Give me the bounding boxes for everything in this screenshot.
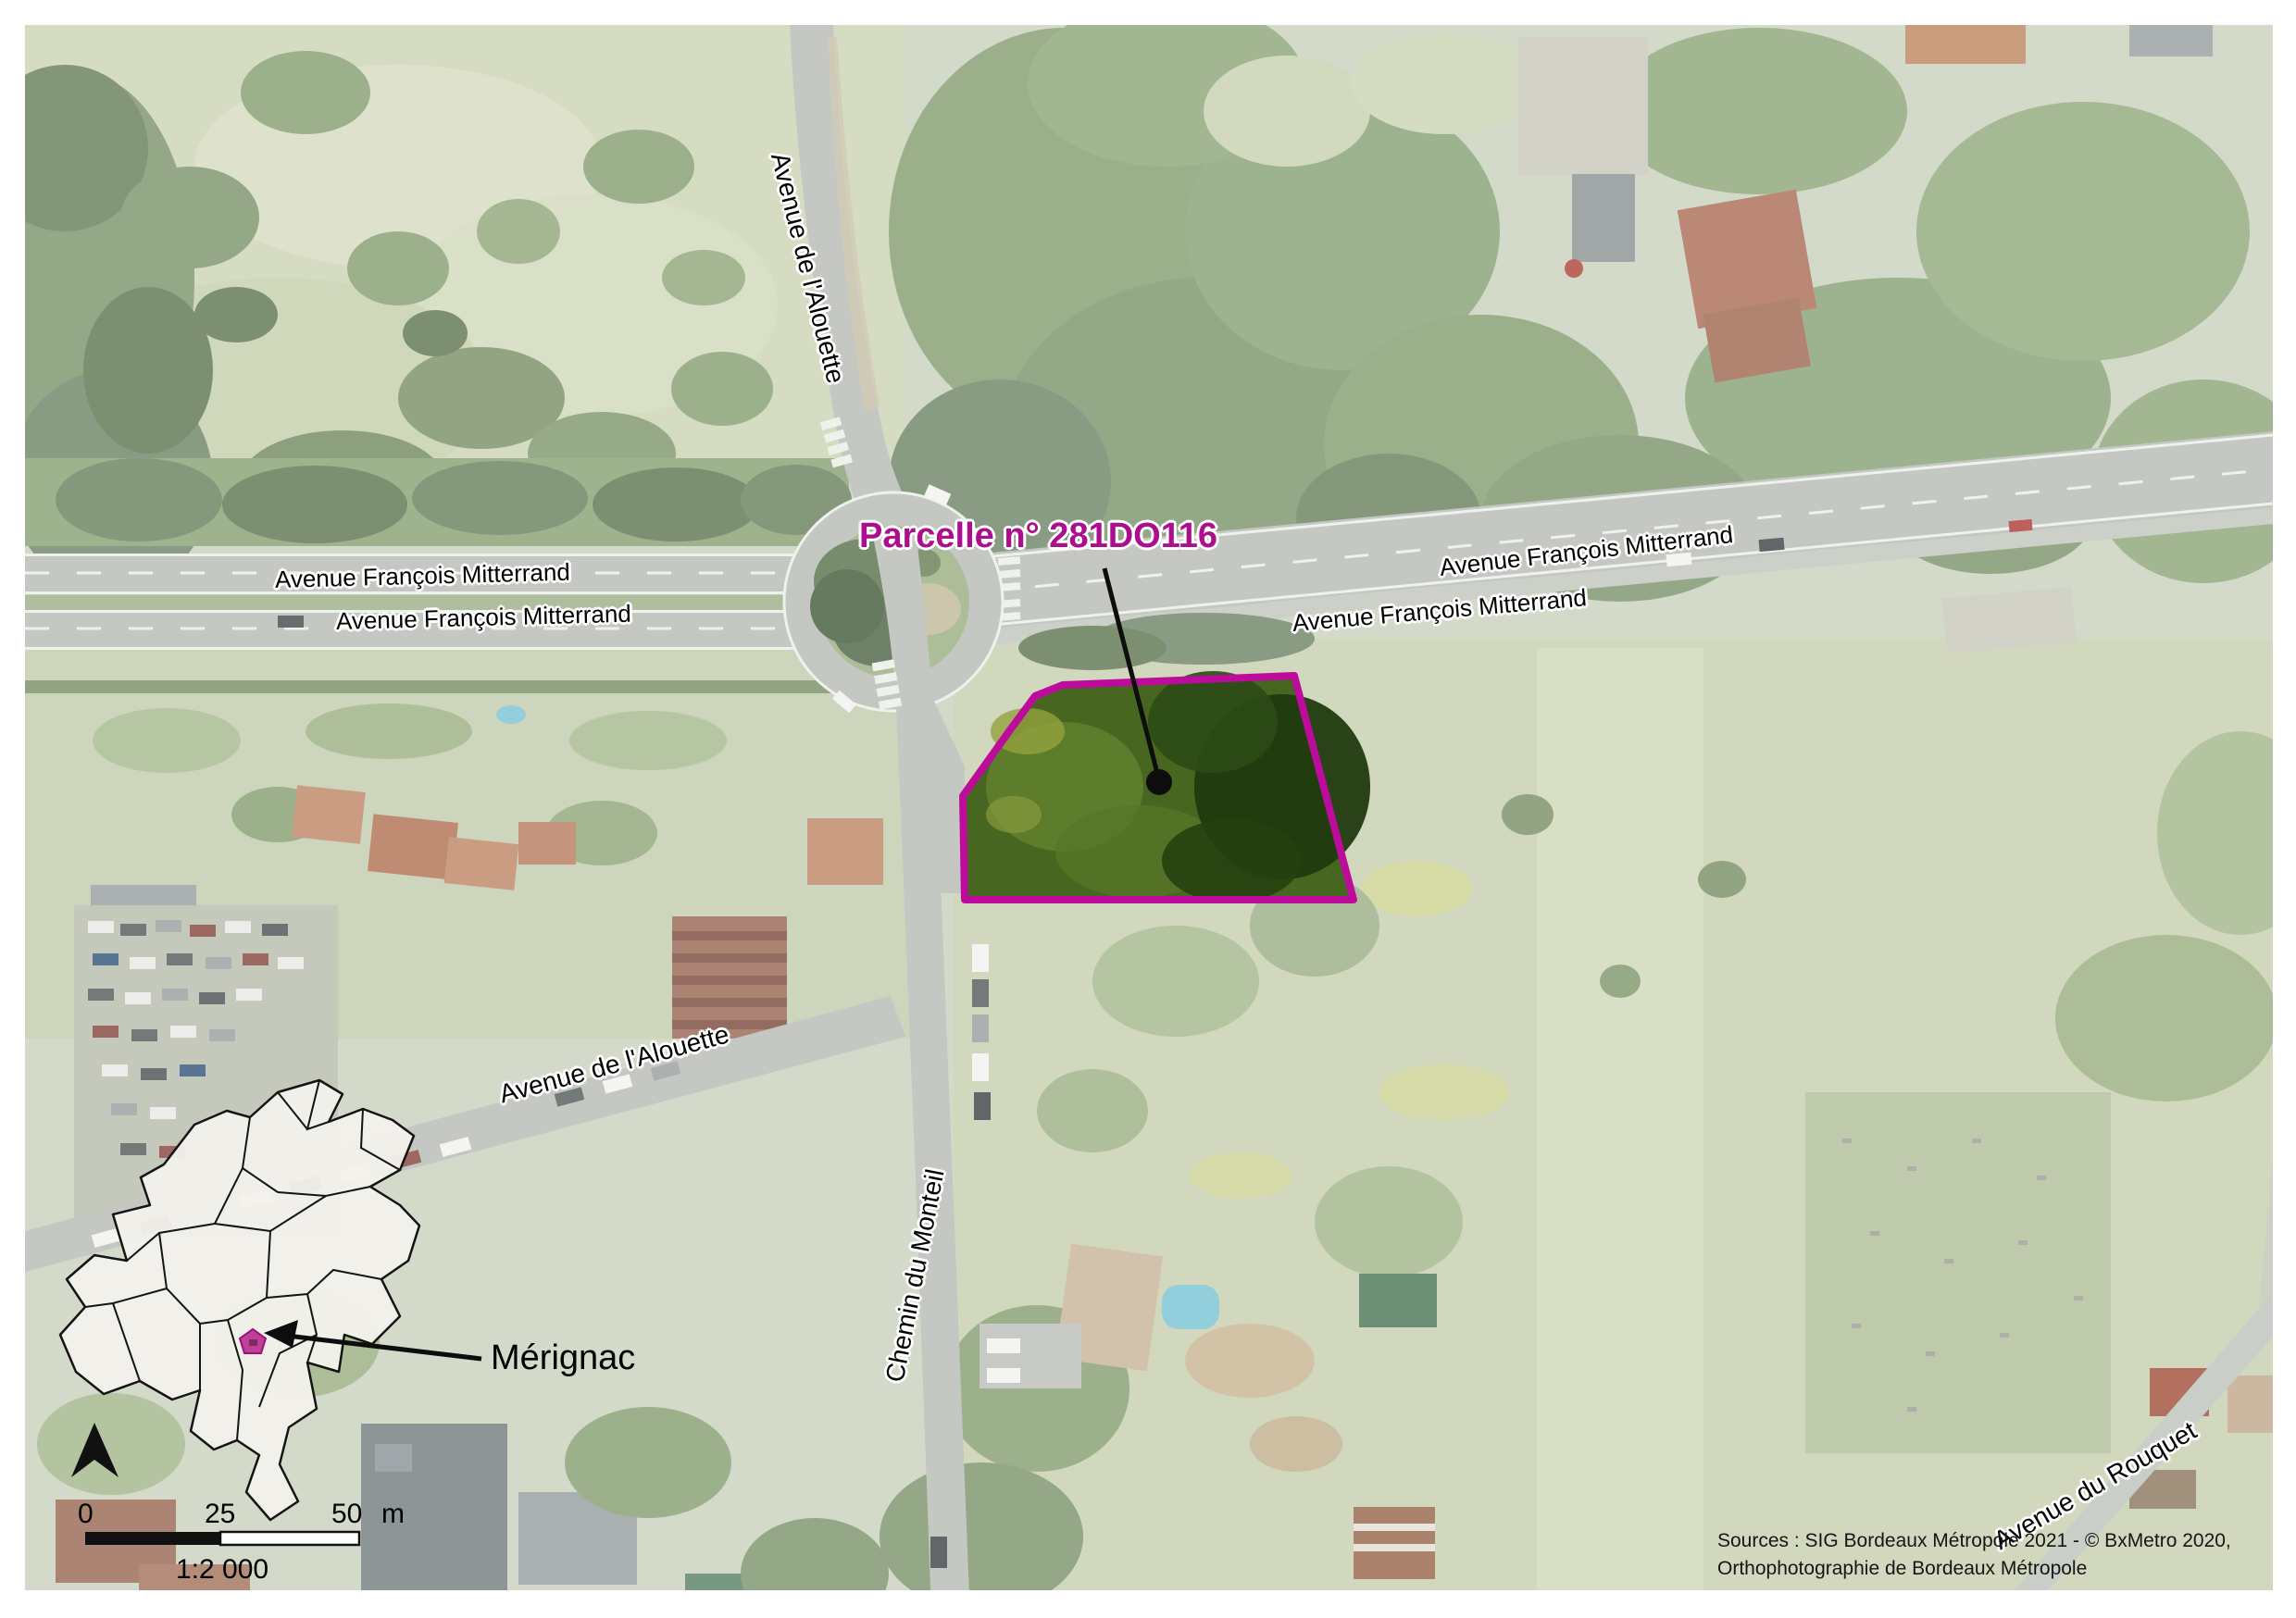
commune-label: Mérignac [491, 1340, 635, 1377]
parcel-label: Parcelle n° 281DO116 [859, 518, 1217, 555]
scale-unit: m [381, 1500, 405, 1529]
map-page: Parcelle n° 281DO116 Avenue de l'Alouett… [0, 0, 2296, 1618]
scale-bar [85, 1532, 359, 1545]
scale-ratio: 1:2 000 [176, 1555, 268, 1585]
sources-line-2: Orthophotographie de Bordeaux Métropole [1717, 1555, 2231, 1583]
sources-attribution: Sources : SIG Bordeaux Métropole 2021 - … [1717, 1527, 2231, 1583]
aerial-photo [0, 0, 2296, 1618]
orthophoto-map [0, 0, 2296, 1618]
sources-line-1: Sources : SIG Bordeaux Métropole 2021 - … [1717, 1527, 2231, 1555]
scale-tick-0: 0 [78, 1500, 94, 1529]
scale-tick-25: 25 [205, 1500, 235, 1529]
scale-tick-50: 50 [331, 1500, 362, 1529]
